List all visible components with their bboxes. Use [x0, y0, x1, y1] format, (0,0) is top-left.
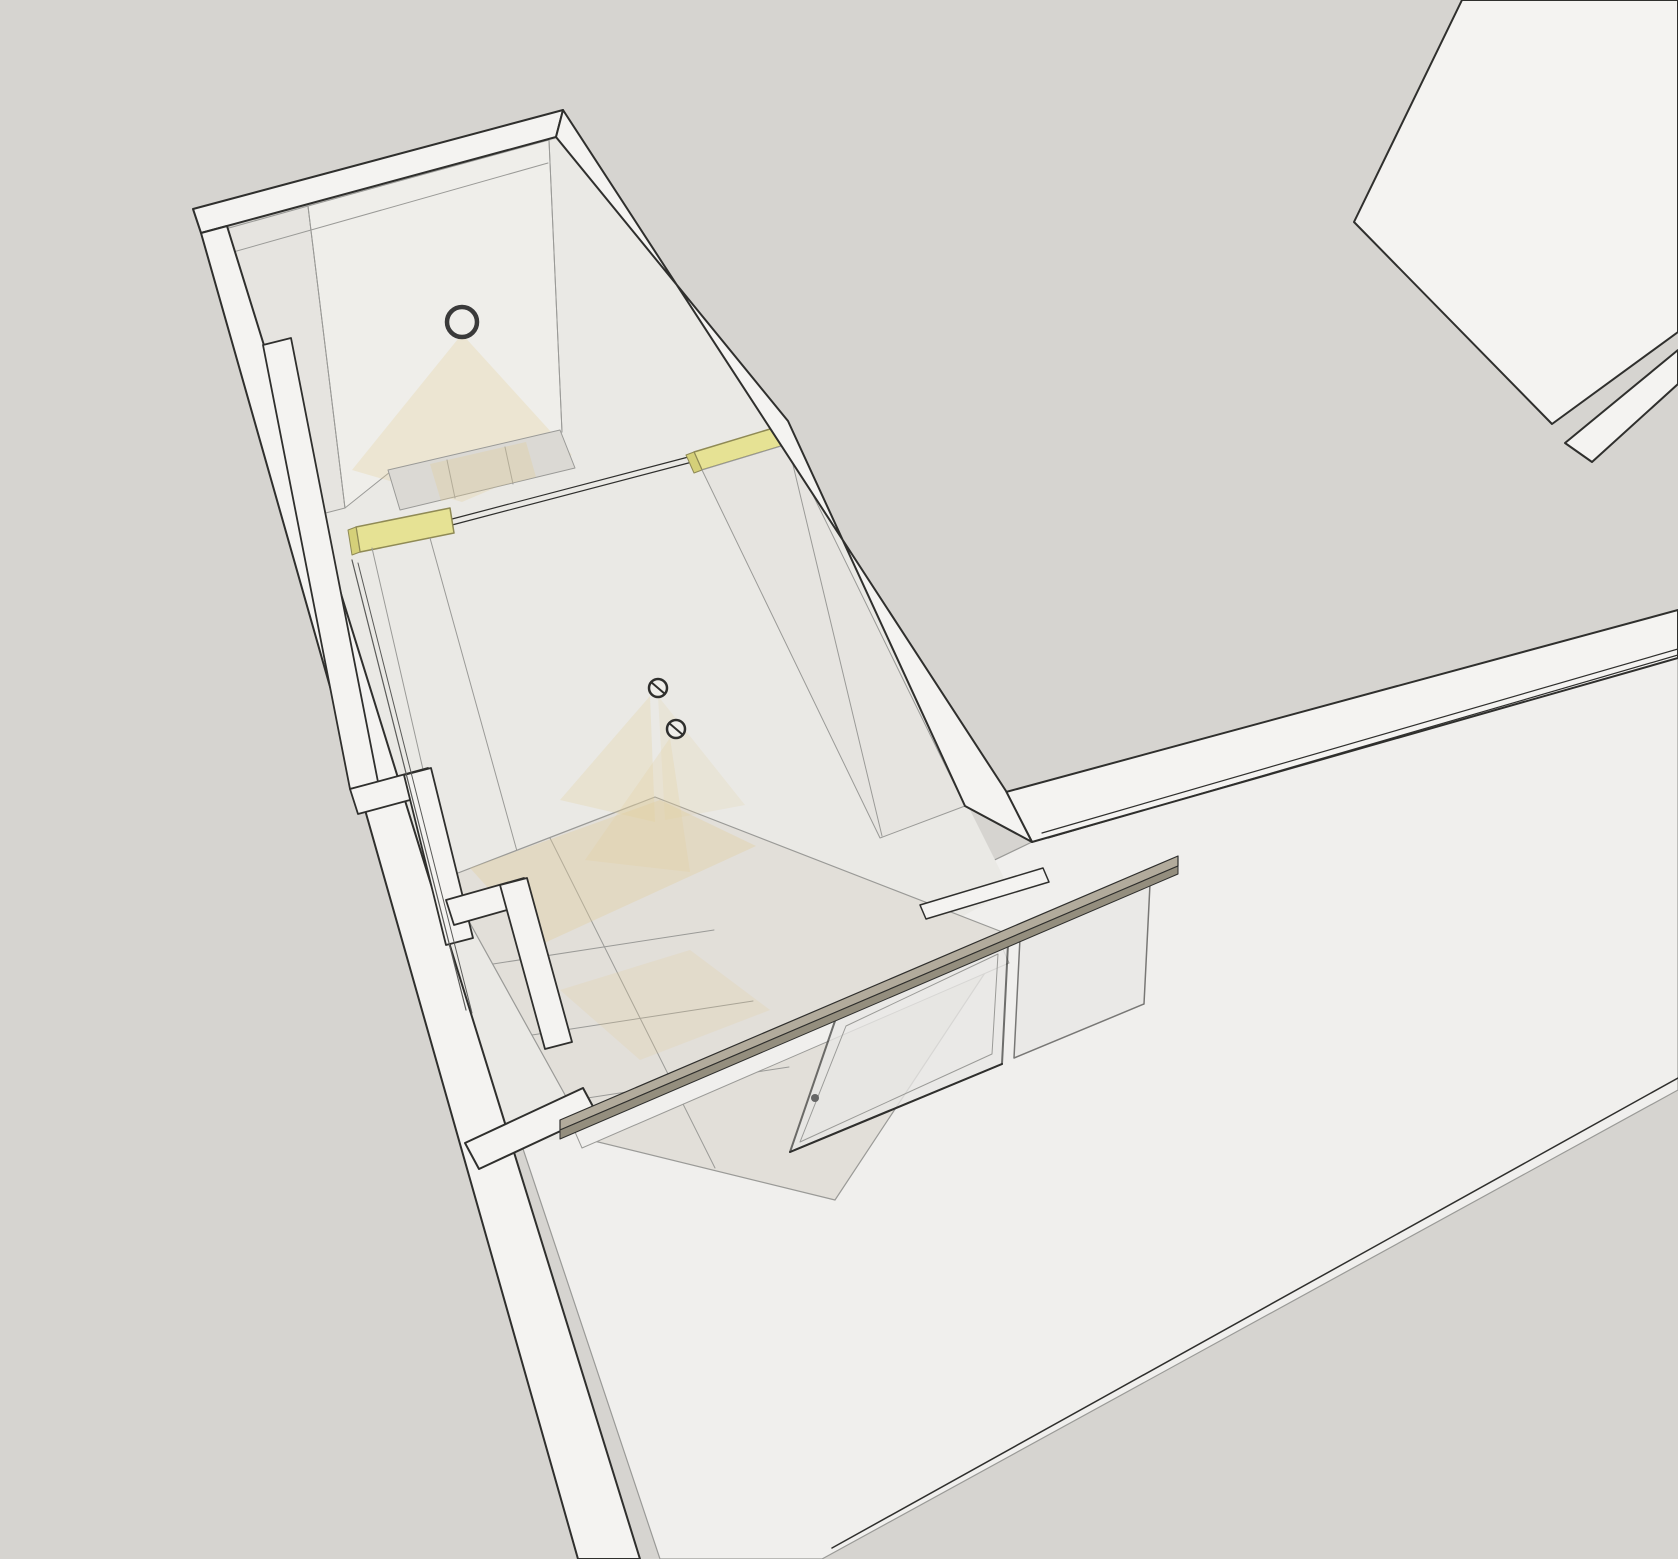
3d-model-viewport[interactable]: [0, 0, 1678, 1559]
model-viewport-container: [0, 0, 1678, 1559]
door-handle: [811, 1094, 819, 1102]
